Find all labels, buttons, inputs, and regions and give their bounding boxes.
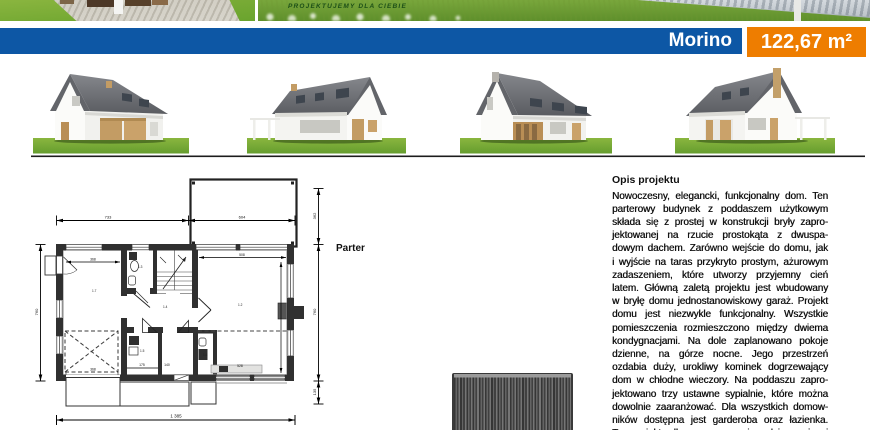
svg-text:1.5: 1.5 [140,349,145,353]
svg-text:368: 368 [90,368,96,372]
svg-text:604: 604 [239,215,246,220]
svg-text:362: 362 [312,212,317,219]
svg-text:760: 760 [312,308,317,315]
svg-text:140: 140 [164,363,170,367]
svg-text:1.2: 1.2 [238,303,243,307]
svg-text:368: 368 [90,258,96,262]
svg-text:760: 760 [34,308,39,315]
svg-text:1.6: 1.6 [203,353,208,357]
svg-text:Parter: Parter [336,243,365,254]
svg-text:1 385: 1 385 [170,414,182,419]
svg-text:508: 508 [239,253,245,257]
svg-text:1.7: 1.7 [92,289,97,293]
svg-text:733: 733 [105,215,112,220]
svg-text:175: 175 [139,363,145,367]
svg-text:135: 135 [312,388,317,395]
svg-text:1.4: 1.4 [163,305,168,309]
svg-text:528: 528 [237,364,243,368]
svg-text:1.3: 1.3 [138,265,143,269]
